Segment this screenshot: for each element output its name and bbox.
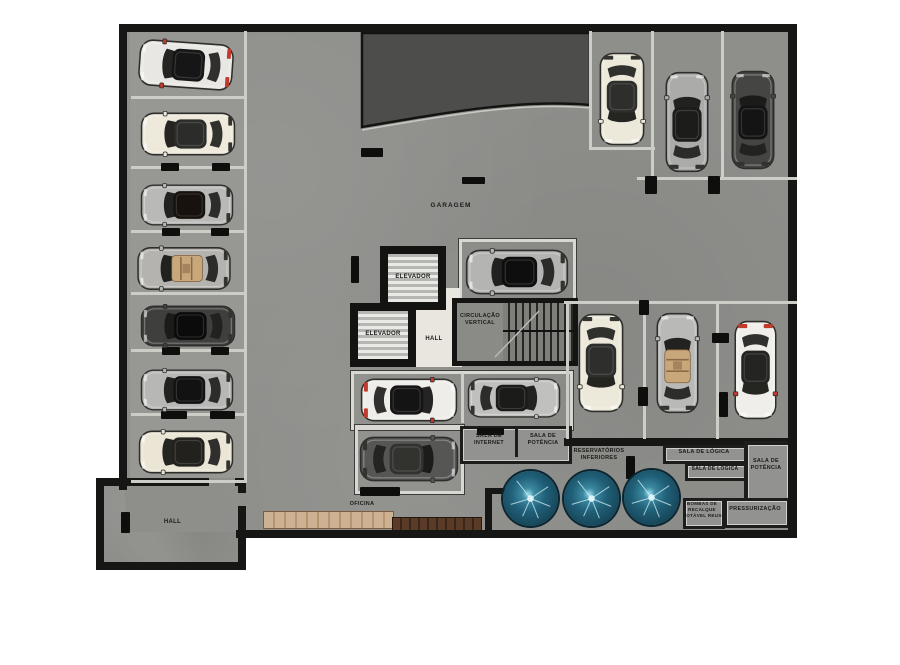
pillar (639, 300, 649, 315)
label-reservatorios: RESERVATÓRIOS INFERIORES (565, 448, 633, 461)
elevator-lower-label: ELEVADOR (365, 331, 400, 338)
car (140, 111, 236, 157)
stall-line (589, 147, 655, 150)
car (577, 313, 625, 413)
pillar (162, 228, 180, 236)
label-hall-core: HALL (414, 336, 454, 343)
label-sala-potencia-a: SALA DE POTÊNCIA (518, 433, 568, 446)
pillar (161, 163, 179, 171)
room-pressurizacao (724, 498, 790, 528)
stall-line (643, 304, 646, 439)
stall-line (721, 31, 724, 179)
wall-left (119, 24, 127, 490)
pillar (211, 347, 229, 355)
water-tank (564, 471, 619, 526)
label-sala-potencia-b: SALA DE POTÊNCIA (745, 458, 787, 471)
stairwell-room (452, 298, 578, 366)
label-hall-ext: HALL (150, 519, 195, 526)
car (655, 312, 700, 414)
pillar (712, 333, 729, 343)
car (733, 320, 778, 420)
pillar (645, 176, 657, 194)
label-bombas: BOMBAS DE RECALQUE POTÁVEL REUSO (683, 501, 721, 519)
garage-floor-plan: ELEVADOR ELEVADOR (0, 0, 900, 665)
wall-top (119, 24, 797, 32)
car (140, 304, 236, 348)
workbench-light-wood (263, 511, 394, 529)
car (138, 429, 234, 475)
label-circulacao: CIRCULAÇÃO VERTICAL (456, 313, 504, 326)
pillar (121, 512, 130, 533)
car (360, 377, 458, 423)
pillar (708, 176, 720, 194)
stair-arrow (487, 303, 547, 361)
elevator-upper-label: ELEVADOR (395, 274, 430, 281)
stall-line (131, 349, 247, 352)
room-potencia-b (744, 441, 792, 503)
label-oficina: OFICINA (340, 501, 384, 508)
pillar (638, 387, 648, 406)
stall-line (566, 304, 569, 439)
car (137, 245, 232, 291)
pillar (210, 411, 235, 419)
car (664, 71, 710, 173)
wall-bottom (236, 530, 797, 538)
pillar (161, 411, 187, 419)
label-sala-logica-1: SALA DE LÓGICA (664, 449, 744, 456)
workbench-dark-wood (392, 517, 482, 531)
car (465, 248, 569, 296)
double-stall-divider (461, 373, 464, 423)
pillar (719, 392, 728, 417)
pillar (462, 177, 485, 184)
ext-wall-bottom (96, 562, 246, 570)
stall-line (131, 292, 247, 295)
car (140, 183, 234, 227)
stall-line (131, 230, 247, 233)
car (730, 70, 776, 170)
stall-line (131, 96, 247, 99)
pillar (162, 347, 180, 355)
stall-line (589, 31, 592, 149)
car (140, 368, 234, 412)
label-pressurizacao: PRESSURIZAÇÃO (724, 506, 786, 513)
wall-right (788, 24, 797, 538)
stall-line (651, 31, 654, 179)
pillar (212, 163, 230, 171)
oficina-workbench (360, 487, 400, 496)
label-garagem: GARAGEM (420, 202, 482, 210)
water-tank (503, 471, 558, 526)
pillar (361, 148, 383, 157)
ramp (360, 29, 592, 131)
elevator-upper: ELEVADOR (380, 246, 446, 310)
stall-line (564, 301, 797, 304)
water-tank (624, 470, 679, 525)
stall-line (716, 304, 719, 439)
car (467, 377, 561, 419)
car (598, 52, 646, 146)
pillar (351, 256, 359, 283)
ext-door-gap-right (238, 493, 246, 506)
label-sala-internet: SALA DE INTERNET (463, 433, 515, 446)
ext-wall-right (238, 478, 246, 570)
stall-line (131, 480, 247, 483)
label-sala-logica-2: SALA DE LÓGICA (686, 466, 744, 472)
stall-line (244, 31, 247, 481)
car (136, 37, 235, 94)
reservoir-left-wall (485, 488, 492, 533)
elevator-lower: ELEVADOR (350, 303, 416, 367)
car (359, 435, 459, 483)
pillar (211, 228, 229, 236)
ext-wall-left (96, 478, 104, 570)
